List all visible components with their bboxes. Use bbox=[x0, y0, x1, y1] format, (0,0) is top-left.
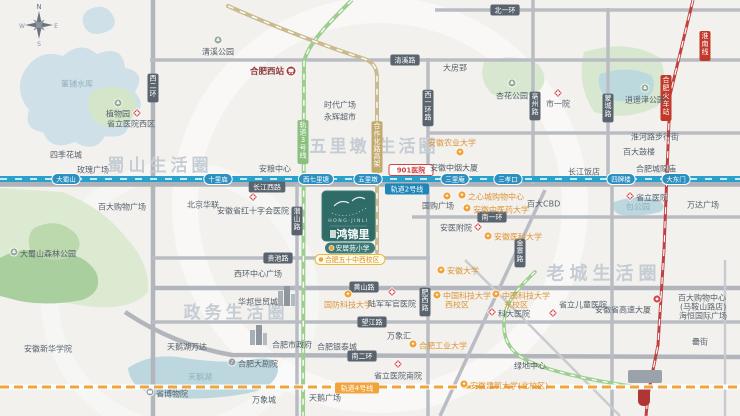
metro-station-name: 三孝口 bbox=[498, 176, 518, 184]
poi-marker: 合肥西站 bbox=[249, 66, 296, 77]
poi-label: 百大购物中心 bbox=[678, 293, 726, 303]
poi-label: 天鹅广场 bbox=[309, 393, 341, 403]
poi-label: 之心城购物中心 bbox=[468, 192, 524, 202]
building-icon bbox=[250, 330, 255, 345]
poi-marker: 包公园 bbox=[626, 202, 650, 212]
poi-label: 省博物院 bbox=[156, 389, 188, 399]
road-label: 潜山路 bbox=[294, 207, 301, 231]
poi-marker: 合肥银泰城 bbox=[317, 342, 357, 352]
poi-label: 大蜀山森林公园 bbox=[20, 249, 76, 259]
poi-label: 西环中心广场 bbox=[234, 269, 282, 279]
poi-label-line2: (马鞍山路店) bbox=[680, 302, 726, 312]
poi-marker: 时代广场 bbox=[324, 100, 356, 110]
poi-marker: 大房郢 bbox=[443, 63, 467, 73]
school-dot-icon bbox=[329, 245, 334, 250]
metro-station-name: 三里庵 bbox=[445, 175, 465, 184]
compass-n: N bbox=[36, 3, 41, 11]
poi-label: 市一院 bbox=[546, 99, 570, 109]
poi-marker: 科大医院 bbox=[487, 307, 530, 318]
star-glyph: ★ bbox=[346, 291, 350, 297]
school-pill-label: 合肥五十中西校区 bbox=[325, 255, 380, 264]
metro-station-name: 十里庙 bbox=[208, 175, 228, 184]
poi-label: 长江饭店 bbox=[568, 167, 600, 177]
poi-marker: 董铺水库 bbox=[61, 79, 93, 89]
poi-marker: 万象汇 bbox=[387, 331, 411, 341]
reservoir-water bbox=[83, 7, 115, 34]
poi-label: 百大鼓楼 bbox=[623, 147, 655, 157]
poi-label: 玫瑰广场 bbox=[77, 165, 109, 175]
metro-station-name: 大东门 bbox=[666, 175, 686, 184]
poi-label: 安徽医科大学 bbox=[494, 232, 542, 242]
poi-label: 安徽大学 bbox=[447, 266, 479, 276]
metro-station-name: 大蜀山 bbox=[56, 175, 76, 184]
road-label: 合作化路高架 bbox=[374, 121, 381, 168]
landmark-dot bbox=[656, 298, 659, 301]
road-label: 长江西路 bbox=[253, 183, 281, 192]
poi-label: 罍街 bbox=[692, 337, 708, 347]
poi-label: 植物园 bbox=[106, 109, 130, 119]
poi-label: 国购广场 bbox=[422, 201, 454, 211]
poi-marker: ♣大蜀山森林公园 bbox=[10, 248, 76, 259]
road-label: 亳州路 bbox=[532, 92, 539, 116]
poi-marker: 安徽新华学院 bbox=[24, 344, 72, 354]
star-glyph: ★ bbox=[460, 192, 464, 198]
road-label: 蒙城路 bbox=[605, 94, 612, 118]
poi-marker: 玫瑰广场 bbox=[77, 165, 109, 175]
metro-station-name: 五里墩 bbox=[358, 175, 378, 184]
tree-glyph: ♣ bbox=[510, 80, 514, 86]
poi-marker: ★安徽建筑大学(北校区) bbox=[460, 380, 548, 391]
poi-label-line2: 西校区 bbox=[445, 300, 469, 310]
poi-marker: 百大鼓楼 bbox=[623, 147, 655, 157]
star-glyph: ★ bbox=[439, 267, 443, 273]
tree-glyph: ♣ bbox=[116, 100, 120, 106]
poi-label: 中国科技大学 bbox=[502, 291, 550, 301]
cross-h bbox=[390, 291, 395, 293]
road-label: 望江路 bbox=[362, 318, 383, 327]
poi-marker: ★安徽大学 bbox=[437, 266, 479, 276]
poi-marker: 罍街 bbox=[692, 337, 708, 347]
road-label: 轨道4号线 bbox=[341, 384, 373, 393]
poi-marker: ★之心城购物中心 bbox=[458, 191, 524, 202]
compass-s: S bbox=[37, 41, 41, 48]
poi-label: 省立医院西区 bbox=[107, 119, 155, 129]
train-wheel bbox=[292, 73, 294, 75]
poi-label: 北京华联 bbox=[187, 200, 219, 210]
poi-label: 合肥大剧院 bbox=[238, 359, 278, 369]
tree-glyph: ♣ bbox=[216, 37, 220, 43]
poi-label: 绿地中心 bbox=[514, 361, 546, 371]
school-dot-icon bbox=[318, 257, 323, 262]
poi-marker: ★国防科技大学 bbox=[324, 290, 372, 310]
map-canvas: 蜀山生活圈五里墩 生活圈政务生活圈老城生活圈 大蜀山十里庙西七里塘五里墩三里庵三… bbox=[0, 0, 740, 416]
poi-label: 合肥市政府 bbox=[272, 340, 312, 350]
poi-marker: 安徽省高速大厦 bbox=[595, 295, 661, 315]
building-icon bbox=[284, 286, 290, 306]
road-label: 轨道2号线 bbox=[391, 185, 423, 194]
museum-glyph bbox=[148, 391, 152, 394]
project-logo: HONG·JINLI 鸿锦里 bbox=[322, 191, 375, 241]
cross-h bbox=[396, 363, 401, 365]
road-label: 金寨路 bbox=[517, 239, 524, 263]
tree-glyph: ♣ bbox=[12, 249, 16, 255]
poi-label: 科大医院 bbox=[498, 309, 530, 319]
poi-label: 合肥工业大学 bbox=[419, 341, 467, 351]
poi-label-line2: 东校区 bbox=[504, 300, 528, 310]
poi-label: 省立医院 bbox=[636, 193, 668, 203]
poi-marker: ★安徽中医药大学 bbox=[463, 204, 529, 215]
poi-label: 百大购物广场 bbox=[98, 202, 146, 212]
poi-label: 大房郢 bbox=[443, 63, 467, 73]
poi-marker: 百大CBD bbox=[527, 199, 560, 209]
cross-h bbox=[556, 92, 561, 94]
poi-label: 百大CBD bbox=[527, 199, 560, 209]
metro-station-name: 四牌楼 bbox=[611, 175, 631, 184]
poi-label: 合肥银泰城 bbox=[317, 342, 357, 352]
poi-label: 万达广场 bbox=[687, 200, 719, 210]
cross-h bbox=[628, 195, 633, 197]
poi-label: 万象城 bbox=[252, 395, 276, 405]
watermark-label: 老城生活圈 bbox=[547, 263, 662, 285]
poi-label: 省立医院南院 bbox=[374, 371, 422, 381]
cross-h bbox=[476, 226, 481, 228]
poi-marker: ♣清溪公园 bbox=[202, 36, 234, 57]
railway-label: 淮南线 bbox=[702, 31, 709, 56]
poi-label: 安医附院 bbox=[440, 223, 472, 233]
poi-label: 安徽新华学院 bbox=[24, 344, 72, 354]
poi-marker: 省立医院南院 bbox=[374, 359, 422, 380]
note-glyph: ♪ bbox=[230, 359, 233, 365]
logo-seal bbox=[330, 230, 336, 238]
cross-h bbox=[490, 311, 495, 313]
star-glyph: ★ bbox=[435, 292, 439, 298]
poi-marker: 天鹅湖万达 bbox=[167, 342, 207, 352]
poi-label: 安徽建筑大学(北校区) bbox=[470, 381, 548, 391]
road-label: 肥西路 bbox=[422, 289, 429, 312]
railway-labels: 淮南线合肥火车站 bbox=[661, 31, 711, 121]
poi-label: 海恒国际广场 bbox=[679, 311, 727, 321]
road-label: 贵池路 bbox=[268, 254, 289, 263]
poi-marker: 百大购物中心(马鞍山路店) bbox=[678, 293, 726, 312]
compass-e: E bbox=[54, 23, 58, 30]
poi-label: 合肥城隍庙 bbox=[636, 164, 676, 174]
cross-h bbox=[135, 112, 140, 114]
poi-label: 四季花城 bbox=[50, 150, 82, 160]
poi-marker: 百大购物广场 bbox=[98, 202, 146, 212]
metro-station-name: 西七里塘 bbox=[303, 175, 330, 184]
poi-marker: 四季花城 bbox=[50, 150, 82, 160]
school-pill-label: 安居苑小学 bbox=[336, 243, 370, 252]
poi-marker: 安粮中心 bbox=[259, 164, 291, 174]
star-glyph: ★ bbox=[411, 341, 415, 347]
road-label: 南二环 bbox=[352, 352, 373, 361]
poi-label: 杏花公园 bbox=[496, 91, 528, 101]
poi-label: 万象汇 bbox=[387, 331, 411, 341]
poi-label: 包公园 bbox=[626, 202, 650, 212]
star-glyph: ★ bbox=[465, 205, 469, 211]
road-label: 清溪路 bbox=[395, 56, 416, 65]
road-label: 901医院 bbox=[397, 166, 426, 175]
train-station-building bbox=[628, 370, 662, 383]
poi-marker: 万象城 bbox=[252, 395, 276, 405]
poi-label: 天鹅湖万达 bbox=[167, 342, 207, 352]
location-map: 蜀山生活圈五里墩 生活圈政务生活圈老城生活圈 大蜀山十里庙西七里塘五里墩三里庵三… bbox=[0, 0, 740, 416]
watermark-label: 蜀山生活圈 bbox=[108, 155, 213, 176]
poi-marker: 永辉超市 bbox=[324, 112, 356, 122]
project-name-en: HONG·JINLI bbox=[328, 218, 369, 224]
poi-label: 中国科技大学 bbox=[443, 291, 491, 301]
compass-w: W bbox=[19, 23, 25, 30]
project-school-pills: 安居苑小学合肥五十中西校区 bbox=[315, 243, 385, 265]
poi-marker: 安医附院 bbox=[440, 222, 483, 232]
road-label: 黄山路 bbox=[354, 283, 375, 292]
poi-label: 安徽省高速大厦 bbox=[595, 305, 651, 315]
poi-marker: 绿地中心 bbox=[514, 361, 546, 371]
star-glyph: ★ bbox=[445, 193, 449, 199]
poi-label: 安徽中医药大学 bbox=[473, 205, 529, 215]
star-glyph: ★ bbox=[458, 149, 462, 155]
poi-label: 安徽农业大学 bbox=[428, 138, 476, 148]
star-glyph: ★ bbox=[462, 381, 466, 387]
star-glyph: ★ bbox=[494, 291, 498, 297]
compass: N W E S bbox=[19, 3, 58, 48]
cross-h bbox=[551, 312, 556, 314]
road-label: 北一环 bbox=[495, 7, 516, 15]
poi-label: 国防科技大学 bbox=[324, 300, 372, 310]
poi-marker: ★合肥工业大学 bbox=[409, 340, 467, 351]
train-wheel bbox=[289, 73, 291, 75]
poi-label: 安粮中心 bbox=[259, 164, 291, 174]
building-icon bbox=[256, 325, 262, 345]
poi-marker: 长江饭店 bbox=[568, 167, 600, 177]
road-label: 西一环路 bbox=[425, 91, 432, 122]
poi-marker: 海恒国际广场 bbox=[679, 311, 727, 321]
poi-label: 安徽省红十字会医院 bbox=[217, 206, 289, 216]
poi-marker: ★中国科技大学西校区 bbox=[433, 291, 491, 310]
poi-label: 天鹅湖 bbox=[188, 372, 212, 382]
poi-marker: 天鹅广场 bbox=[309, 393, 341, 403]
building-icon bbox=[278, 291, 283, 306]
poi-marker: 合肥城隍庙 bbox=[636, 164, 676, 174]
poi-label: 陆军军官医院 bbox=[368, 299, 416, 309]
poi-label: 逍遥津公园 bbox=[625, 95, 665, 105]
cross-h bbox=[251, 196, 256, 198]
poi-label: 合肥西站 bbox=[249, 66, 285, 77]
road-label: 西二环 bbox=[150, 75, 157, 98]
poi-marker: 北京华联 bbox=[187, 200, 219, 210]
poi-label: 淮河路步行街 bbox=[631, 132, 679, 142]
poi-marker: 西环中心广场 bbox=[234, 269, 282, 279]
poi-label: 永辉超市 bbox=[324, 112, 356, 122]
project-name-zh: 鸿锦里 bbox=[337, 227, 370, 241]
poi-marker: 安徽中烟大厦 bbox=[430, 163, 478, 173]
train-body bbox=[288, 69, 293, 73]
poi-label: 安徽中烟大厦 bbox=[430, 163, 478, 173]
poi-label: 清溪公园 bbox=[202, 47, 234, 57]
building-icon bbox=[291, 294, 295, 306]
poi-marker: 天鹅湖 bbox=[188, 372, 212, 382]
poi-label: 华邦世贸城 bbox=[238, 297, 278, 307]
poi-label: 时代广场 bbox=[324, 100, 356, 110]
tree-glyph: ♣ bbox=[643, 85, 647, 91]
poi-label: 董铺水库 bbox=[61, 79, 93, 89]
building-icon bbox=[263, 333, 267, 345]
poi-marker: ★安徽医科大学 bbox=[484, 232, 542, 242]
poi-marker: 万达广场 bbox=[687, 200, 719, 210]
poi-marker: 淮河路步行街 bbox=[631, 132, 679, 142]
star-glyph: ★ bbox=[486, 233, 490, 239]
